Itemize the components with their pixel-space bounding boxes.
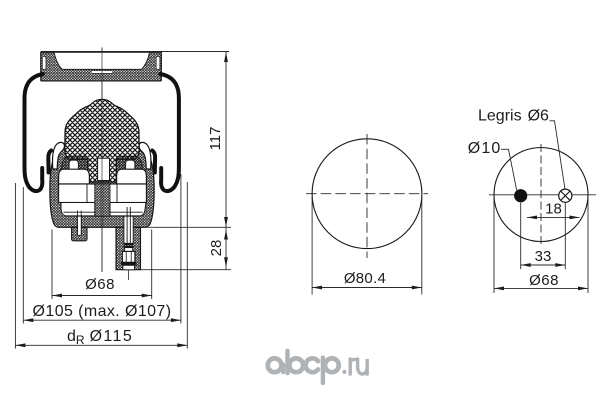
svg-text:Ø10: Ø10: [468, 140, 502, 157]
svg-text:Ø105 (max. Ø107): Ø105 (max. Ø107): [33, 303, 172, 320]
svg-text:Ø80.4: Ø80.4: [344, 270, 386, 287]
svg-text:18: 18: [545, 201, 562, 218]
svg-text:33: 33: [535, 248, 552, 265]
svg-text:Ø68: Ø68: [85, 276, 115, 293]
svg-text:Ø68: Ø68: [529, 272, 559, 289]
svg-text:LegrisØ6: LegrisØ6: [478, 108, 549, 125]
svg-text:dRØ115: dRØ115: [67, 328, 133, 347]
svg-text:117: 117: [207, 127, 224, 151]
svg-text:28: 28: [208, 240, 225, 257]
